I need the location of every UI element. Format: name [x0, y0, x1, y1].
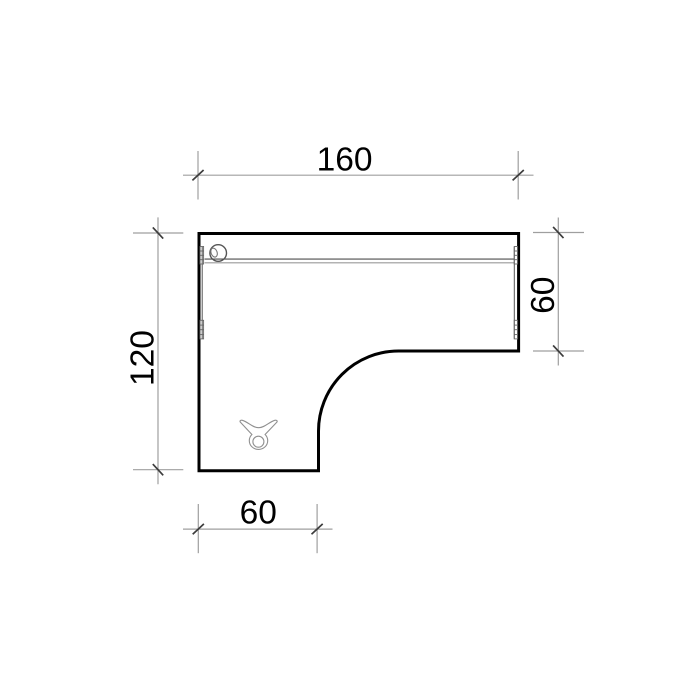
svg-text:120: 120	[125, 330, 162, 386]
svg-text:160: 160	[317, 142, 373, 179]
svg-text:60: 60	[525, 277, 562, 314]
svg-text:60: 60	[240, 495, 277, 532]
